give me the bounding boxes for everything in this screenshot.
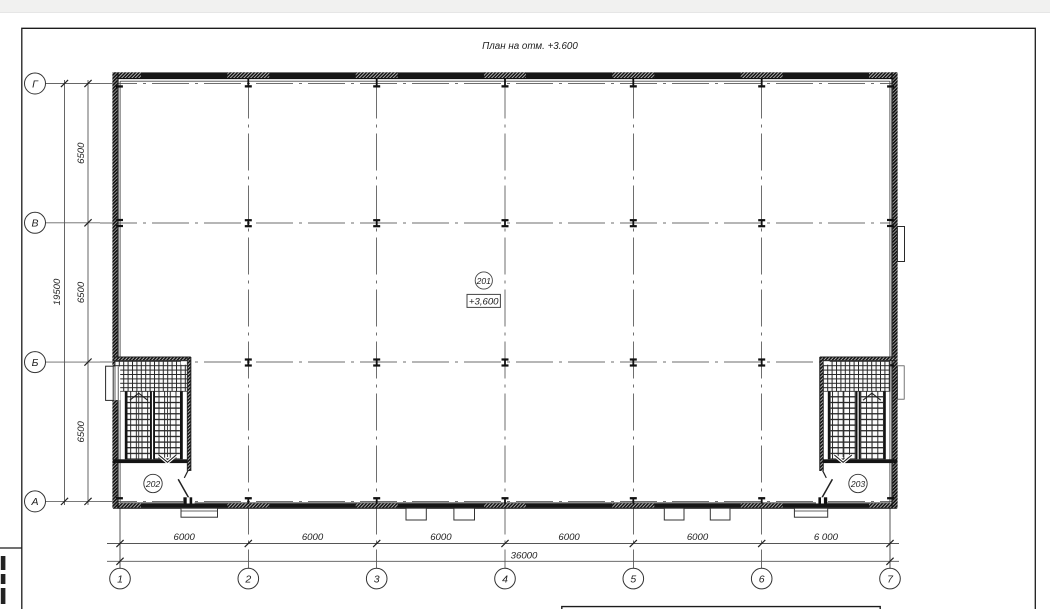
svg-text:6500: 6500 bbox=[76, 142, 87, 164]
svg-text:1: 1 bbox=[117, 573, 123, 585]
svg-text:6500: 6500 bbox=[76, 281, 87, 303]
svg-text:202: 202 bbox=[145, 479, 161, 489]
svg-text:203: 203 bbox=[850, 479, 866, 489]
svg-text:+3,600: +3,600 bbox=[469, 297, 499, 308]
svg-text:План на отм. +3.600: План на отм. +3.600 bbox=[482, 41, 578, 52]
svg-text:6000: 6000 bbox=[558, 532, 580, 543]
svg-text:6500: 6500 bbox=[76, 420, 87, 442]
svg-text:6 000: 6 000 bbox=[814, 532, 839, 543]
svg-text:5: 5 bbox=[630, 573, 636, 585]
svg-text:6000: 6000 bbox=[174, 532, 196, 543]
svg-text:6000: 6000 bbox=[302, 532, 324, 543]
svg-text:Б: Б bbox=[32, 357, 39, 369]
svg-text:6000: 6000 bbox=[430, 532, 452, 543]
svg-text:201: 201 bbox=[476, 276, 492, 286]
svg-text:36000: 36000 bbox=[511, 550, 538, 561]
svg-text:3: 3 bbox=[374, 573, 380, 585]
svg-text:6000: 6000 bbox=[687, 532, 709, 543]
svg-text:4: 4 bbox=[502, 573, 508, 585]
svg-text:19500: 19500 bbox=[52, 278, 63, 305]
svg-text:В: В bbox=[31, 218, 38, 230]
svg-text:2: 2 bbox=[244, 573, 251, 585]
svg-text:А: А bbox=[30, 496, 38, 508]
svg-text:6: 6 bbox=[759, 573, 765, 585]
